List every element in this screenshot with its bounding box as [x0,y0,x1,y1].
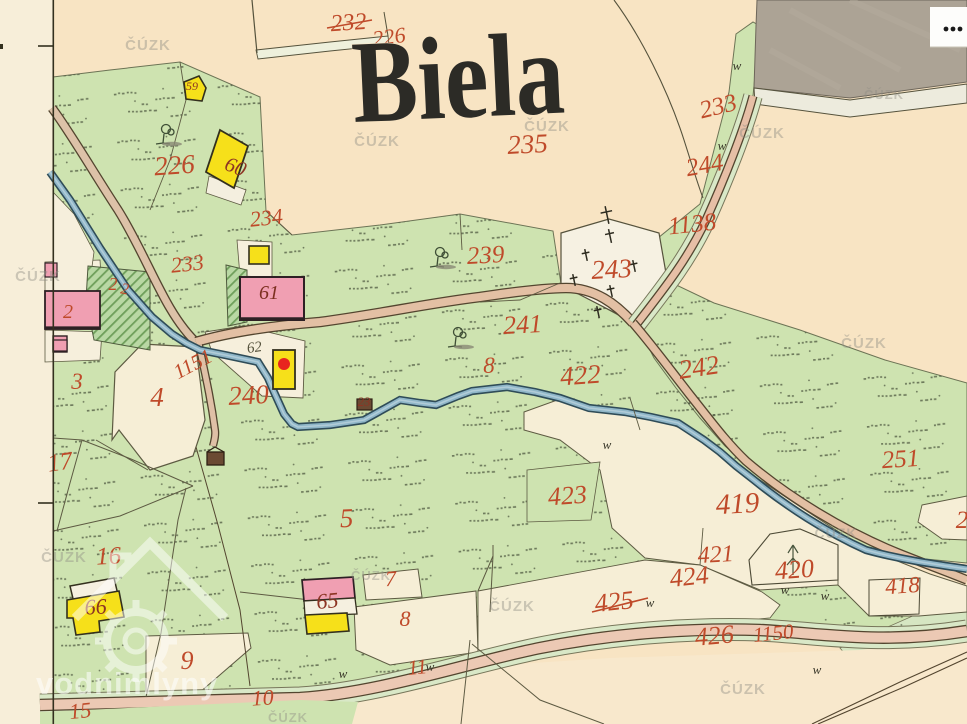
svg-text:424: 424 [668,560,710,593]
svg-text:w: w [781,582,790,597]
svg-text:ČÚZK: ČÚZK [41,548,87,566]
svg-text:426: 426 [694,619,735,651]
svg-text:ČÚZK: ČÚZK [720,680,766,698]
svg-text:w: w [733,58,742,73]
svg-text:vodnimlyny: vodnimlyny [36,666,218,701]
svg-text:61: 61 [259,282,279,304]
svg-text:65: 65 [315,587,339,614]
svg-text:243: 243 [591,253,633,285]
svg-text:w: w [718,138,727,153]
svg-text:ČÚZK: ČÚZK [524,117,570,135]
svg-text:226: 226 [153,149,196,182]
svg-text:ČÚZK: ČÚZK [354,132,400,150]
svg-text:234: 234 [248,203,283,231]
svg-text:3: 3 [70,369,83,394]
svg-text:242: 242 [677,349,721,384]
svg-text:59: 59 [186,79,198,93]
svg-text:2: 2 [109,274,118,294]
svg-text:23: 23 [358,394,372,409]
svg-text:w: w [426,659,435,674]
svg-text:8: 8 [483,353,495,378]
svg-text:2: 2 [956,507,967,534]
svg-text:w: w [339,666,348,681]
svg-text:w: w [821,588,830,603]
svg-text:ČÚZK: ČÚZK [864,87,904,102]
svg-text:ČÚZK: ČÚZK [841,334,887,352]
svg-text:ČÚZK: ČÚZK [489,597,535,615]
svg-text:w: w [646,595,655,610]
svg-text:ČÚZK: ČÚZK [15,267,61,285]
svg-text:2: 2 [63,301,73,323]
svg-text:5: 5 [339,503,354,534]
svg-text:ČÚZK: ČÚZK [351,568,391,583]
svg-text:ČÚZK: ČÚZK [739,124,785,142]
svg-text:241: 241 [502,309,542,340]
svg-text:418: 418 [884,572,921,599]
svg-text:ČÚZK: ČÚZK [125,36,171,54]
svg-text:4: 4 [150,382,164,412]
svg-text:ČÚZK: ČÚZK [268,710,308,724]
svg-text:1150: 1150 [752,619,795,647]
svg-text:1138: 1138 [667,209,718,241]
svg-text:425: 425 [593,585,635,618]
svg-text:240: 240 [228,379,271,411]
svg-text:15: 15 [68,697,92,724]
svg-text:62: 62 [246,339,264,357]
svg-text:251: 251 [881,445,920,475]
svg-text:w: w [603,437,612,452]
svg-text:420: 420 [774,554,815,586]
svg-text:422: 422 [559,359,601,392]
svg-text:423: 423 [547,480,588,512]
svg-text:10: 10 [251,684,274,710]
svg-text:239: 239 [466,241,505,270]
svg-text:419: 419 [715,487,761,521]
svg-text:233: 233 [169,249,204,277]
svg-text:ČÚZK: ČÚZK [815,524,858,541]
svg-text:8: 8 [400,606,411,631]
svg-text:w: w [813,662,822,677]
